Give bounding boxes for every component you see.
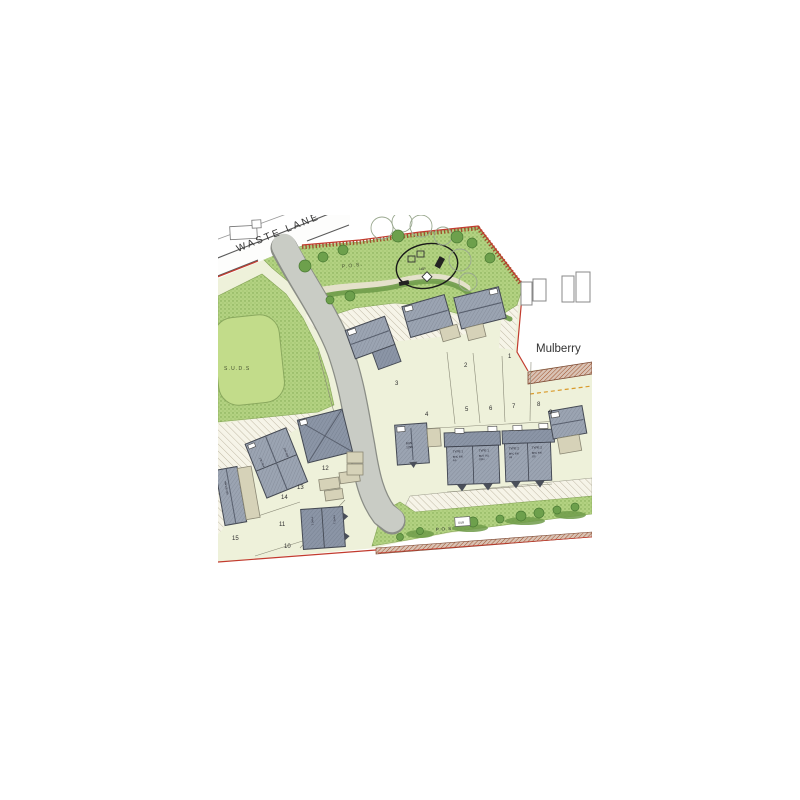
house-type-11: TYPE 1 [310,517,314,526]
garage [427,428,441,447]
sub-label: SUB [458,520,464,524]
chimney [455,428,464,433]
terrace-block-a: TYPE 1 BHC 930 AS TYPE 1 BUS 761 OPH [444,426,502,492]
site-plan-drawing: LAP [0,0,800,800]
plot-number-10: 10 [284,544,291,550]
plot-number-14: 14 [281,495,288,501]
terrace-type-2b: TYPE 2 [532,445,543,449]
lap-label: LAP [419,267,426,271]
terrace-block-b: TYPE 2 BHC 930 U3 TYPE 2 BHC 930 OS [502,423,556,489]
suds-pond-inner [212,313,287,407]
suds-label: S.U.D.S [224,366,250,372]
site-plan-canvas: LAP [0,0,800,800]
house-plots10-11: TYPE 1 TYPE 1 [301,506,351,549]
terrace-type-2a: TYPE 2 [509,446,520,450]
plot-number-15: 15 [232,536,239,542]
chimney [488,426,497,431]
terrace-type-1a: TYPE 1 [453,449,464,453]
chimney [513,425,522,430]
existing-building-outline [252,220,261,228]
mulberry-label: Mulberry [536,343,581,355]
terrace-type-1b: TYPE 1 [479,448,490,452]
chimney [397,426,405,432]
plot-number-13: 13 [297,485,304,491]
house-type-10: TYPE 1 [332,515,336,524]
terrace-code2-1b: OPH [479,458,485,461]
garage [557,435,581,455]
plot-number-12: 12 [322,466,329,472]
terrace-code2-1a: AS [453,459,457,462]
bungalow-code2: 1296 [406,445,413,449]
substation: SUB [455,517,471,527]
plot-number-11: 11 [279,522,286,528]
terrace-code2-2b: OS [532,455,536,458]
mulberry-buildings [521,272,590,305]
chimney [539,423,548,428]
